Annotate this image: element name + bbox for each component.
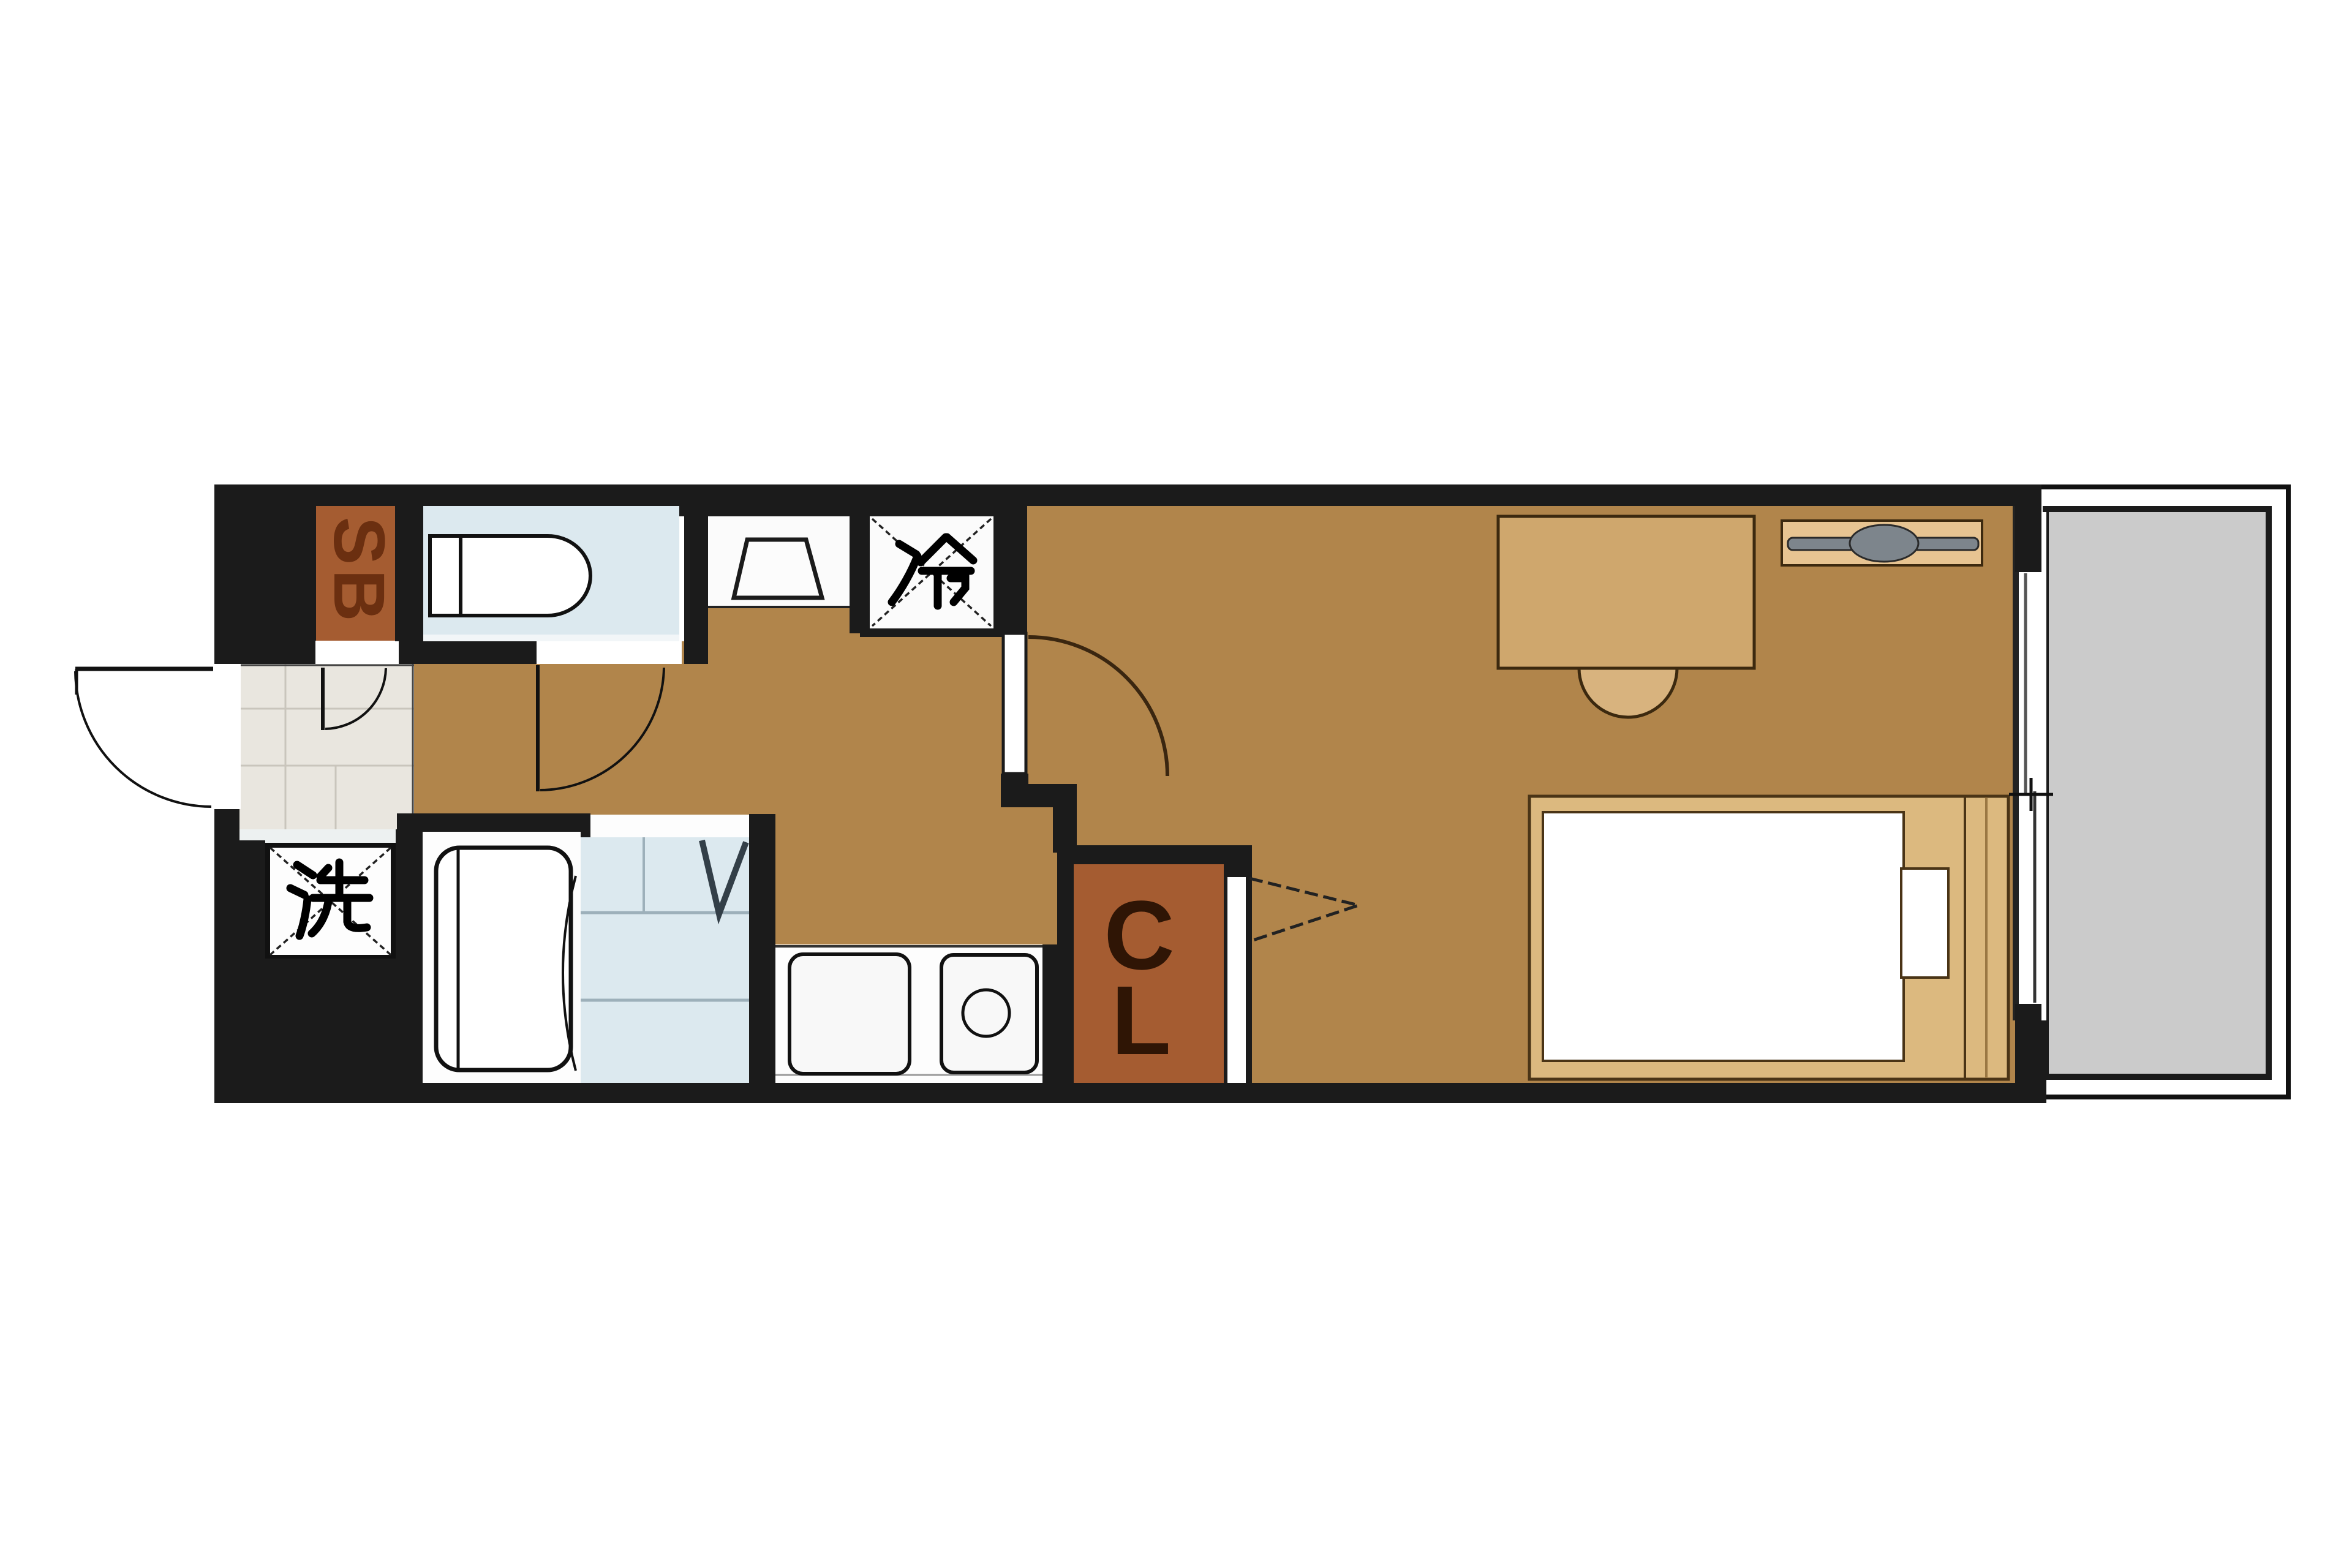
svg-text:B: B xyxy=(318,569,399,621)
svg-text:S: S xyxy=(318,517,399,565)
svg-text:L: L xyxy=(1111,965,1171,1075)
